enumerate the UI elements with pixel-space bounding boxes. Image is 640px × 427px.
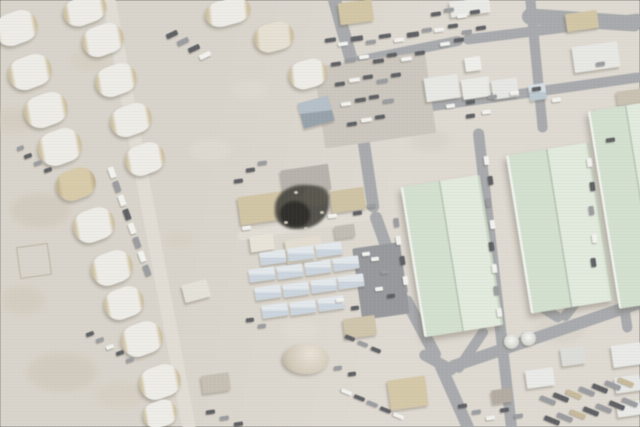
sand-patch [95,382,145,408]
vehicle [86,331,95,337]
vehicle [513,413,522,418]
white-building [571,41,620,73]
tan-building [387,376,429,411]
white-building [449,0,491,18]
ground-marking [16,243,52,279]
blue-roof-hut [254,284,282,300]
vehicle [353,394,365,402]
vehicle [334,365,342,370]
tan-building [338,0,375,25]
vehicle [340,388,352,396]
vehicle [106,344,115,350]
blue-roof-hut [304,259,332,275]
vehicle [348,371,356,376]
vehicle [258,323,266,328]
vehicle [233,421,242,426]
sand-patch [165,232,195,248]
quonset-hangar [106,99,156,142]
white-building [181,279,211,303]
vehicle [44,167,53,173]
vehicle [122,208,131,220]
sand-patch [190,139,230,161]
vehicle [137,250,146,262]
vehicle [199,50,212,60]
blue-roof-hut [276,263,304,279]
vehicle [588,205,594,215]
sand-patch [232,81,268,99]
dome-tent [283,344,329,374]
vehicle [257,160,266,165]
blue-roof-hut [248,266,276,282]
vehicle [324,37,335,42]
vehicle [127,222,136,234]
vehicle [586,157,592,167]
vehicle [471,409,480,414]
blue-roof-hut [289,299,317,315]
vehicle [476,25,486,30]
vehicle [358,340,369,347]
blue-roof-hut [315,241,343,257]
blue-roof-hut [310,277,338,293]
vehicle [24,153,33,159]
vehicle [485,197,491,207]
vehicle [448,23,458,28]
vehicle [233,178,242,183]
white-building [525,367,555,389]
tan-building [330,187,367,214]
grey-building [560,345,586,366]
vehicle [488,241,494,251]
quonset-hangar [202,0,253,31]
vehicle [434,27,444,32]
sand-patch [27,352,97,392]
white-building [461,76,492,100]
vehicle [177,36,190,46]
satellite-scene [0,0,640,427]
vehicle [491,263,497,273]
vehicle [483,155,489,165]
quonset-hangar [121,138,169,180]
white-building [464,56,482,72]
white-building [611,342,640,368]
vehicle [188,43,201,53]
vehicle [132,236,141,248]
blast-debris [304,227,308,230]
vehicle [116,350,125,356]
quonset-hangar [4,49,56,94]
compound-building [249,233,275,252]
blast-debris [284,221,288,224]
grey-building [491,388,513,405]
vehicle [245,167,254,172]
quonset-hangar [0,5,42,50]
vehicle [589,181,595,191]
quonset-hangar [251,18,297,55]
blast-debris [294,191,298,194]
vehicle [379,406,391,414]
vehicle [431,11,441,16]
vehicle [481,109,490,114]
satellite-image [0,0,640,427]
vehicle [96,337,105,343]
blue-roof-building [527,83,546,101]
storage-tank [521,331,536,346]
blast-damage-mark [303,186,329,206]
vehicle [392,412,404,420]
vehicle [219,415,228,420]
sand-patch [0,285,45,315]
vehicle [422,27,432,32]
vehicle [16,145,24,151]
quonset-hangar [69,203,119,247]
sand-patch [282,320,318,340]
quonset-hangar [87,246,137,290]
vehicle [496,307,502,317]
vehicle [407,31,420,38]
vehicle [366,39,376,44]
blue-roof-hut [259,249,287,265]
vehicle [126,357,135,363]
storage-tank [504,334,519,349]
vehicle [457,13,467,18]
quonset-hangar [140,396,181,427]
blue-roof-hut [261,302,289,318]
vehicle [590,257,596,267]
vehicle [379,33,391,39]
vehicle [489,219,495,229]
vehicle [393,217,399,227]
vehicle [205,409,214,414]
blast-debris [320,211,324,214]
vehicle [465,113,474,118]
vehicle [402,275,408,285]
vehicle [34,160,43,166]
vehicle [485,415,494,420]
blue-roof-hut [282,281,310,297]
vehicle [107,166,116,178]
vehicle [394,37,404,42]
vehicle [351,305,359,310]
compound-building [334,223,356,239]
vehicle [399,255,405,265]
vehicle [117,194,126,206]
vehicle [351,35,364,42]
vehicle [142,264,151,276]
vehicle [246,317,254,322]
quonset-hangar [117,317,167,361]
grey-building [201,372,231,394]
vehicle [551,97,560,102]
vehicle [591,233,597,243]
vehicle [112,180,121,192]
vehicle [493,285,499,295]
white-building [423,74,460,102]
vehicle [366,400,378,408]
quonset-hangar [100,282,148,324]
vehicle [487,175,493,185]
vehicle [371,346,382,353]
vehicle [166,29,179,39]
vehicle [395,235,401,245]
